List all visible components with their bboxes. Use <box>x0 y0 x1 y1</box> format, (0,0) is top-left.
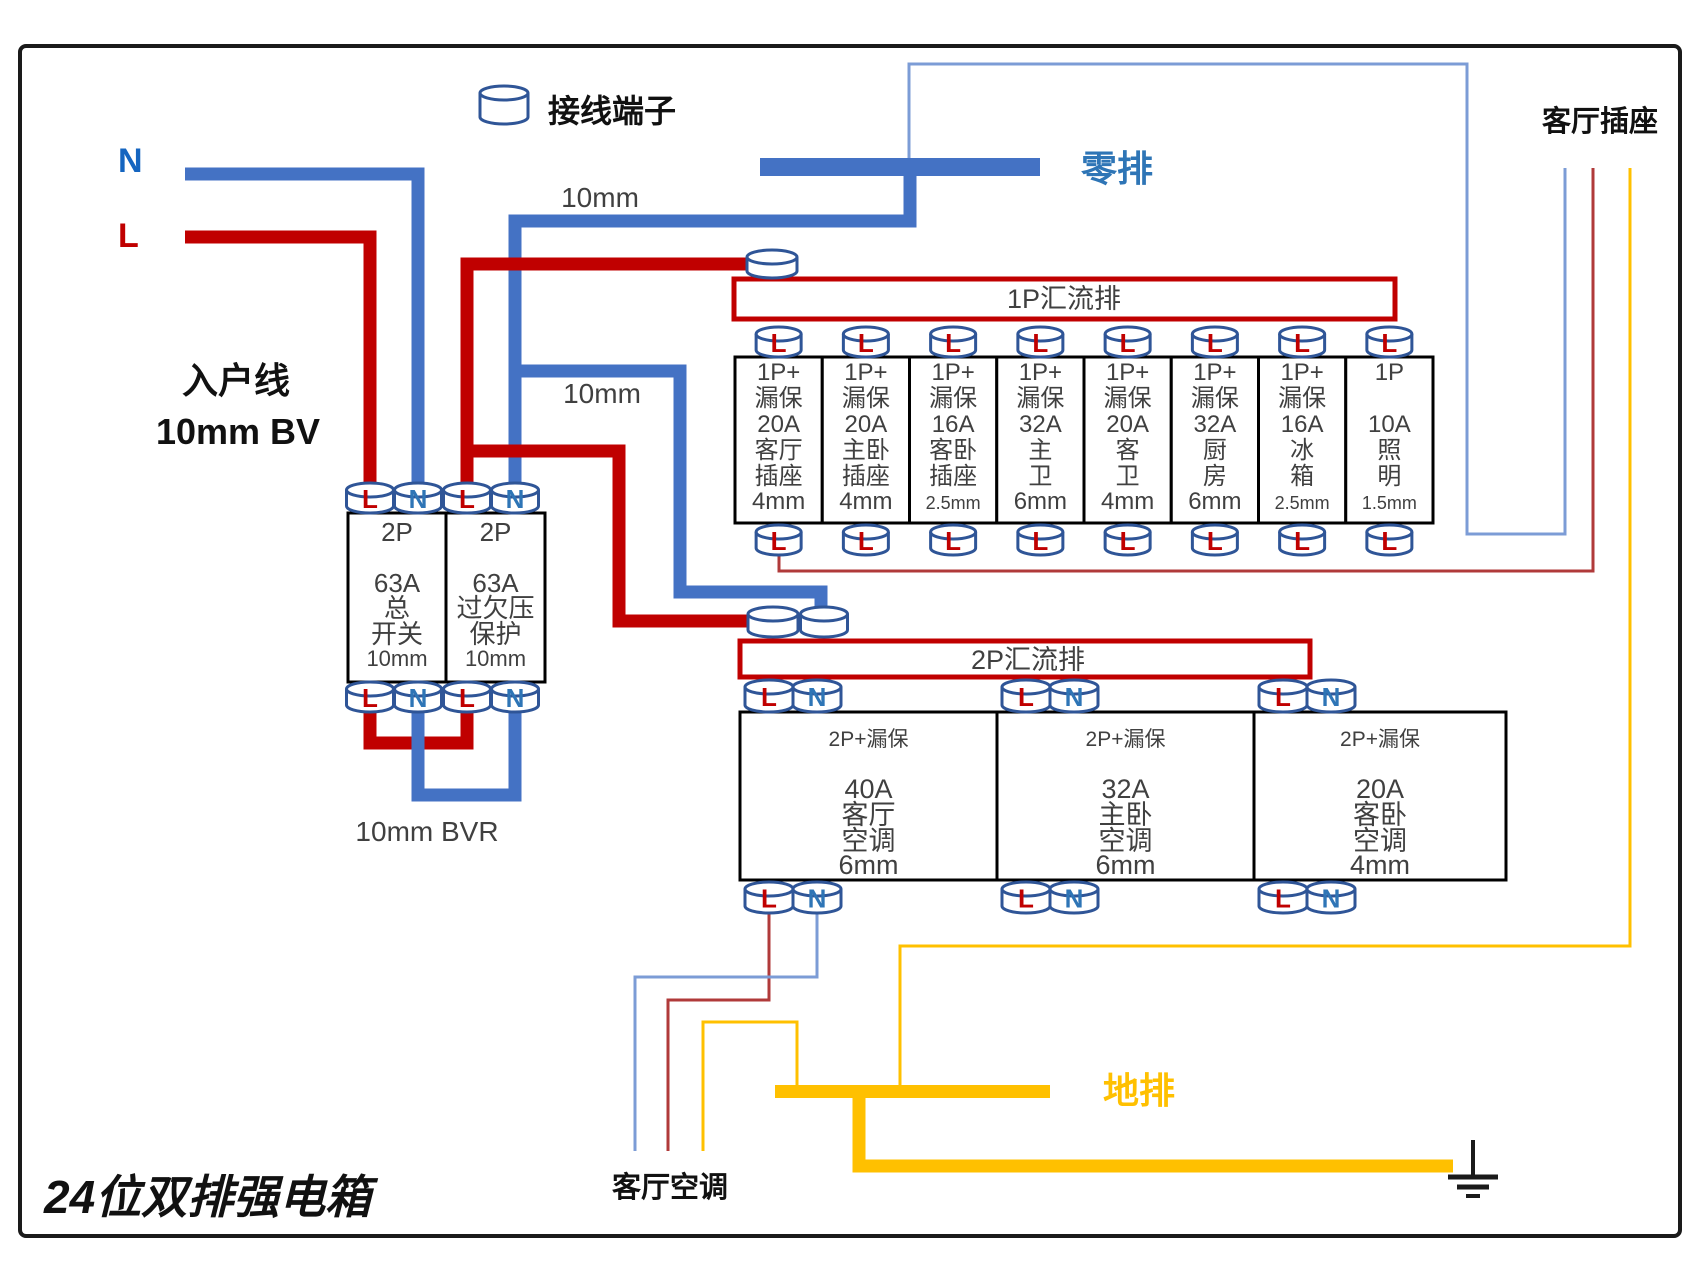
1p-breaker-box-label: 插座 <box>929 463 977 490</box>
1p-breaker-box-label: 箱 <box>1290 463 1314 490</box>
1p-breaker-box-label: 20A <box>757 411 800 438</box>
1p-breaker-box-label: 1P+ <box>1019 359 1062 386</box>
terminal-cylinder: L <box>745 882 793 914</box>
thin-live-to-aircon <box>668 913 769 1151</box>
neutral-bar <box>760 158 1040 176</box>
terminal-cylinder: L <box>1280 525 1325 556</box>
terminal-letter: L <box>858 526 874 556</box>
2p-breaker-row: 2P+漏保40A客厅空调6mmLLNN2P+漏保32A主卧空调6mmLLNN2P… <box>740 680 1506 914</box>
1p-breaker-box-label: 1P+ <box>931 359 974 386</box>
terminal-letter: L <box>771 328 787 358</box>
1p-breaker-box-label: 漏保 <box>929 385 977 412</box>
1p-breaker-box-label: 漏保 <box>842 385 890 412</box>
terminal-letter: L <box>771 526 787 556</box>
socket-load-label: 客厅插座 <box>1542 104 1658 138</box>
terminal-cylinder: L <box>1002 680 1050 712</box>
1p-breaker-box-label: 4mm <box>839 488 892 515</box>
terminal-letter: L <box>1207 526 1223 556</box>
1p-breaker-box-label: 1P+ <box>1106 359 1149 386</box>
aircon-load-label: 客厅空调 <box>612 1170 728 1204</box>
terminal-letter: L <box>761 682 777 712</box>
terminal-letter: L <box>1381 526 1397 556</box>
terminal-cylinder: L <box>1002 882 1050 914</box>
wire-size-label-upper: 10mm <box>561 182 639 213</box>
2p-breaker-box-label: 4mm <box>1350 850 1410 880</box>
main-breaker-box-label: 10mm <box>366 646 427 671</box>
1p-breaker-box-label: 客 <box>1116 437 1140 464</box>
1p-breaker-box-label: 主 <box>1028 437 1052 464</box>
terminal-cylinder <box>748 607 798 637</box>
2p-breaker-box: 2P+漏保32A主卧空调6mm <box>997 712 1254 880</box>
terminal-letter: L <box>945 328 961 358</box>
terminal-letter: N <box>808 682 827 712</box>
incoming-line-name: 入户线 <box>182 360 290 401</box>
terminal-top <box>747 250 797 264</box>
1p-breaker-box-label: 1P+ <box>1280 359 1323 386</box>
1p-breaker-box: 1P10A照明1.5mm <box>1346 357 1433 523</box>
terminal-cylinder: N <box>1050 882 1098 914</box>
1p-breaker-box: 1P+漏保20A客卫4mm <box>1084 357 1171 523</box>
terminal-cylinder: N <box>793 882 841 914</box>
1p-breaker-box-label: 6mm <box>1014 488 1067 515</box>
earth-ground-icon <box>1448 1140 1498 1196</box>
terminal-letter: L <box>1018 884 1034 914</box>
terminal-letter: L <box>1294 526 1310 556</box>
1p-breaker-box-label: 32A <box>1194 411 1237 438</box>
thin-neutral-to-aircon <box>635 913 817 1151</box>
2p-busbar-label: 2P汇流排 <box>971 645 1085 675</box>
terminal-cylinder: L <box>444 483 491 514</box>
wire-size-label-lower: 10mm <box>563 378 641 409</box>
1p-breaker-box-label: 20A <box>845 411 888 438</box>
ground-bar-label: 地排 <box>1103 1070 1175 1111</box>
main-breaker-group: 2P63A总开关10mm2P63A过欠压保护10mmLNLNLNLN <box>347 483 546 713</box>
1p-breaker-row: 1P+漏保20A客厅插座4mmLL1P+漏保20A主卧插座4mmLL1P+漏保1… <box>735 327 1433 556</box>
1p-breaker-box-label: 冰 <box>1290 437 1314 464</box>
terminal-cylinder: N <box>395 483 442 514</box>
terminal-cylinder: L <box>1018 327 1063 358</box>
1p-breaker-box-label: 漏保 <box>755 385 803 412</box>
1p-breaker-box-label: 漏保 <box>1016 385 1064 412</box>
terminal-cylinder: N <box>395 682 442 713</box>
1p-breaker-box: 1P+漏保16A客卧插座2.5mm <box>910 357 997 523</box>
1p-breaker-box-label: 1.5mm <box>1362 493 1417 513</box>
terminal-letter: L <box>459 484 475 514</box>
main-breaker-box-label: 2P <box>381 517 413 547</box>
terminal-letter: L <box>1032 526 1048 556</box>
terminal-cylinder: L <box>756 327 801 358</box>
1p-breaker-box: 1P+漏保32A厨房6mm <box>1171 357 1258 523</box>
wire-size-label-bvr: 10mm BVR <box>355 816 498 847</box>
terminal-letter: N <box>506 683 525 713</box>
terminal-legend-label: 接线端子 <box>548 93 676 129</box>
terminal-letter: L <box>1275 682 1291 712</box>
1p-breaker-box-label: 1P <box>1375 359 1404 386</box>
terminal-cylinder: N <box>492 682 539 713</box>
main-breaker-box-label: 开关 <box>371 619 423 649</box>
terminal-cylinder: L <box>1280 327 1325 358</box>
1p-breaker-box-label: 4mm <box>1101 488 1154 515</box>
terminal-letter: N <box>506 484 525 514</box>
terminal-cylinder: L <box>1105 525 1150 556</box>
terminal-letter: N <box>808 884 827 914</box>
terminal-letter: N <box>1065 884 1084 914</box>
1p-breaker-box-label: 20A <box>1106 411 1149 438</box>
terminal-letter: L <box>362 484 378 514</box>
terminal-cylinder <box>747 250 797 278</box>
terminal-cylinder: L <box>347 483 394 514</box>
1p-breaker-box-label: 卫 <box>1028 463 1052 490</box>
terminal-letter: L <box>1294 328 1310 358</box>
terminal-letter: L <box>1207 328 1223 358</box>
1p-breaker-box-label: 1P+ <box>844 359 887 386</box>
2p-breaker-box-label: 2P+漏保 <box>1086 728 1166 751</box>
terminal-cylinder: L <box>1259 680 1307 712</box>
1p-breaker-box-label: 插座 <box>842 463 890 490</box>
terminal-cylinder: L <box>1105 327 1150 358</box>
terminal-cylinder: N <box>1307 680 1355 712</box>
1p-breaker-box-label: 主卧 <box>842 437 890 464</box>
terminal-legend-icon <box>480 86 528 124</box>
terminal-cylinder <box>480 86 528 124</box>
1p-breaker-box-label: 16A <box>932 411 975 438</box>
terminal-cylinder: L <box>1192 525 1237 556</box>
1p-breaker-box-label: 客卧 <box>929 437 977 464</box>
1p-breaker-box-label: 房 <box>1203 463 1227 490</box>
incoming-live-letter: L <box>118 217 139 255</box>
2p-breaker-box: 2P+漏保20A客卧空调4mm <box>1254 712 1506 880</box>
1p-breaker-box-label: 16A <box>1281 411 1324 438</box>
main-breaker-box-label: 10mm <box>465 646 526 671</box>
diagram-title: 24位双排强电箱 <box>43 1171 379 1223</box>
terminal-cylinder: L <box>444 682 491 713</box>
terminal-cylinder: L <box>843 525 888 556</box>
neutral-bar-label: 零排 <box>1081 148 1153 189</box>
1p-busbar-label: 1P汇流排 <box>1007 284 1121 314</box>
2p-breaker-box: 2P+漏保40A客厅空调6mm <box>740 712 997 880</box>
1p-breaker-box-label: 照 <box>1377 437 1401 464</box>
terminal-top <box>748 607 798 621</box>
terminal-cylinder: L <box>347 682 394 713</box>
wiring-diagram: 2P63A总开关10mm2P63A过欠压保护10mmLNLNLNLN 1P+漏保… <box>0 0 1706 1280</box>
terminal-cylinder: L <box>843 327 888 358</box>
terminal-cylinder: L <box>1367 327 1412 358</box>
1p-breaker-box-label: 6mm <box>1188 488 1241 515</box>
2p-breaker-box-label: 6mm <box>839 850 899 880</box>
terminal-letter: L <box>858 328 874 358</box>
main-breaker-box-label: 2P <box>480 517 512 547</box>
1p-breaker-box-label: 厨 <box>1203 437 1227 464</box>
terminal-letter: L <box>945 526 961 556</box>
incoming-neutral-letter: N <box>118 142 143 180</box>
terminal-letter: N <box>409 683 428 713</box>
main-breaker-box: 2P63A过欠压保护10mm <box>446 513 545 682</box>
terminal-letter: L <box>761 884 777 914</box>
terminal-letter: L <box>1275 884 1291 914</box>
ground-bar <box>775 1085 1050 1098</box>
terminal-cylinder: N <box>1050 680 1098 712</box>
1p-breaker-box-label: 明 <box>1377 463 1401 490</box>
1p-breaker-box: 1P+漏保32A主卫6mm <box>997 357 1084 523</box>
2p-breaker-box-label: 2P+漏保 <box>829 728 909 751</box>
1p-breaker-box-label: 客厅 <box>755 437 803 464</box>
1p-breaker-box-label: 32A <box>1019 411 1062 438</box>
terminal-top <box>480 86 528 100</box>
2p-breaker-box-label: 6mm <box>1096 850 1156 880</box>
main-breaker-box: 2P63A总开关10mm <box>348 513 446 682</box>
terminal-cylinder: N <box>1307 882 1355 914</box>
terminal-letter: L <box>1381 328 1397 358</box>
terminal-letter: L <box>1032 328 1048 358</box>
1p-breaker-box-label: 漏保 <box>1104 385 1152 412</box>
terminal-top <box>801 607 848 621</box>
terminal-cylinder: N <box>492 483 539 514</box>
terminal-cylinder: L <box>1259 882 1307 914</box>
terminal-letter: N <box>1322 884 1341 914</box>
1p-breaker-box-label: 插座 <box>755 463 803 490</box>
terminal-letter: N <box>1322 682 1341 712</box>
1p-breaker-box: 1P+漏保20A客厅插座4mm <box>735 357 822 523</box>
terminal-letter: L <box>362 683 378 713</box>
terminal-letter: L <box>459 683 475 713</box>
2p-breaker-box-label: 2P+漏保 <box>1340 728 1420 751</box>
terminal-cylinder: L <box>931 525 976 556</box>
1p-breaker-box: 1P+漏保16A冰箱2.5mm <box>1259 357 1346 523</box>
terminal-cylinder: L <box>1367 525 1412 556</box>
1p-breaker-box-label: 漏保 <box>1191 385 1239 412</box>
terminal-cylinder: L <box>1192 327 1237 358</box>
1p-breaker-box-label: 4mm <box>752 488 805 515</box>
1p-breaker-box-label: 2.5mm <box>1275 493 1330 513</box>
1p-breaker-box: 1P+漏保20A主卧插座4mm <box>822 357 909 523</box>
terminal-cylinder: N <box>793 680 841 712</box>
diagram-canvas: 2P63A总开关10mm2P63A过欠压保护10mmLNLNLNLN 1P+漏保… <box>0 0 1706 1280</box>
1p-breaker-box-label: 漏保 <box>1278 385 1326 412</box>
main-breaker-box-label: 保护 <box>469 619 521 649</box>
1p-breaker-box-label: 10A <box>1368 411 1411 438</box>
terminal-letter: L <box>1018 682 1034 712</box>
1p-breaker-box-label: 2.5mm <box>926 493 981 513</box>
1p-breaker-box-label: 卫 <box>1116 463 1140 490</box>
terminal-letter: L <box>1120 526 1136 556</box>
terminal-cylinder: L <box>745 680 793 712</box>
terminal-letter: N <box>409 484 428 514</box>
terminal-cylinder: L <box>1018 525 1063 556</box>
terminal-letter: N <box>1065 682 1084 712</box>
terminal-cylinder <box>801 607 848 637</box>
incoming-line-size: 10mm BV <box>156 411 320 452</box>
1p-breaker-box-label: 1P+ <box>1193 359 1236 386</box>
1p-breaker-box-label: 1P+ <box>757 359 800 386</box>
terminal-cylinder: L <box>756 525 801 556</box>
terminal-letter: L <box>1120 328 1136 358</box>
terminal-cylinder: L <box>931 327 976 358</box>
